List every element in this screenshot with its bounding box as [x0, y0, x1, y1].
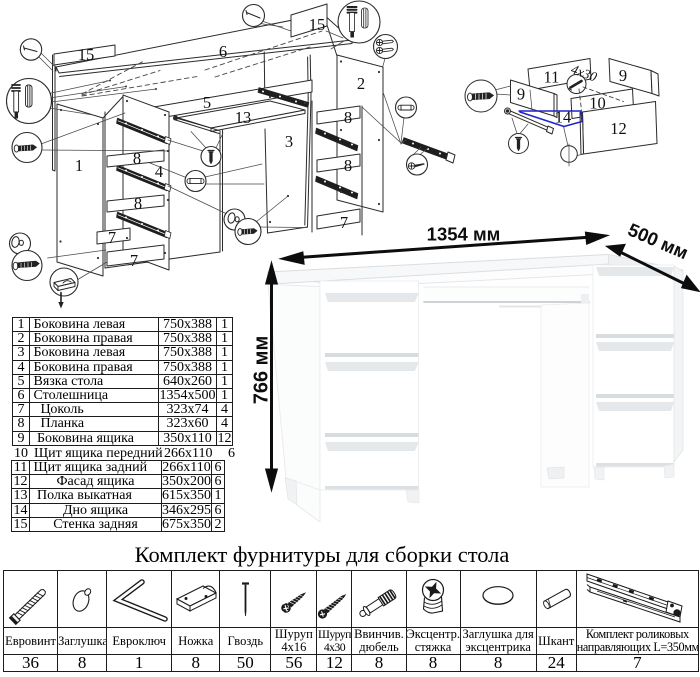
svg-text:11: 11	[544, 68, 560, 87]
svg-text:15: 15	[309, 15, 326, 34]
svg-text:7: 7	[108, 228, 116, 247]
svg-text:3: 3	[285, 132, 293, 151]
svg-text:766 мм: 766 мм	[251, 336, 273, 405]
svg-text:8: 8	[344, 156, 352, 175]
svg-text:8: 8	[133, 149, 141, 168]
svg-text:7: 7	[340, 213, 348, 232]
svg-text:9: 9	[517, 85, 525, 104]
svg-text:5: 5	[203, 93, 211, 112]
svg-text:7: 7	[130, 251, 138, 270]
svg-text:1354 мм: 1354 мм	[427, 224, 501, 245]
svg-text:9: 9	[619, 66, 627, 85]
svg-text:8: 8	[344, 108, 352, 127]
svg-text:2: 2	[357, 74, 365, 93]
svg-text:12: 12	[610, 119, 627, 138]
svg-text:15: 15	[78, 45, 95, 64]
svg-text:10: 10	[589, 94, 606, 113]
svg-text:8: 8	[134, 194, 142, 213]
svg-text:500 мм: 500 мм	[625, 219, 692, 264]
svg-text:6: 6	[219, 42, 227, 61]
svg-text:1: 1	[75, 156, 83, 175]
svg-text:14: 14	[555, 108, 572, 127]
svg-text:4: 4	[155, 162, 163, 181]
svg-text:13: 13	[235, 108, 252, 127]
